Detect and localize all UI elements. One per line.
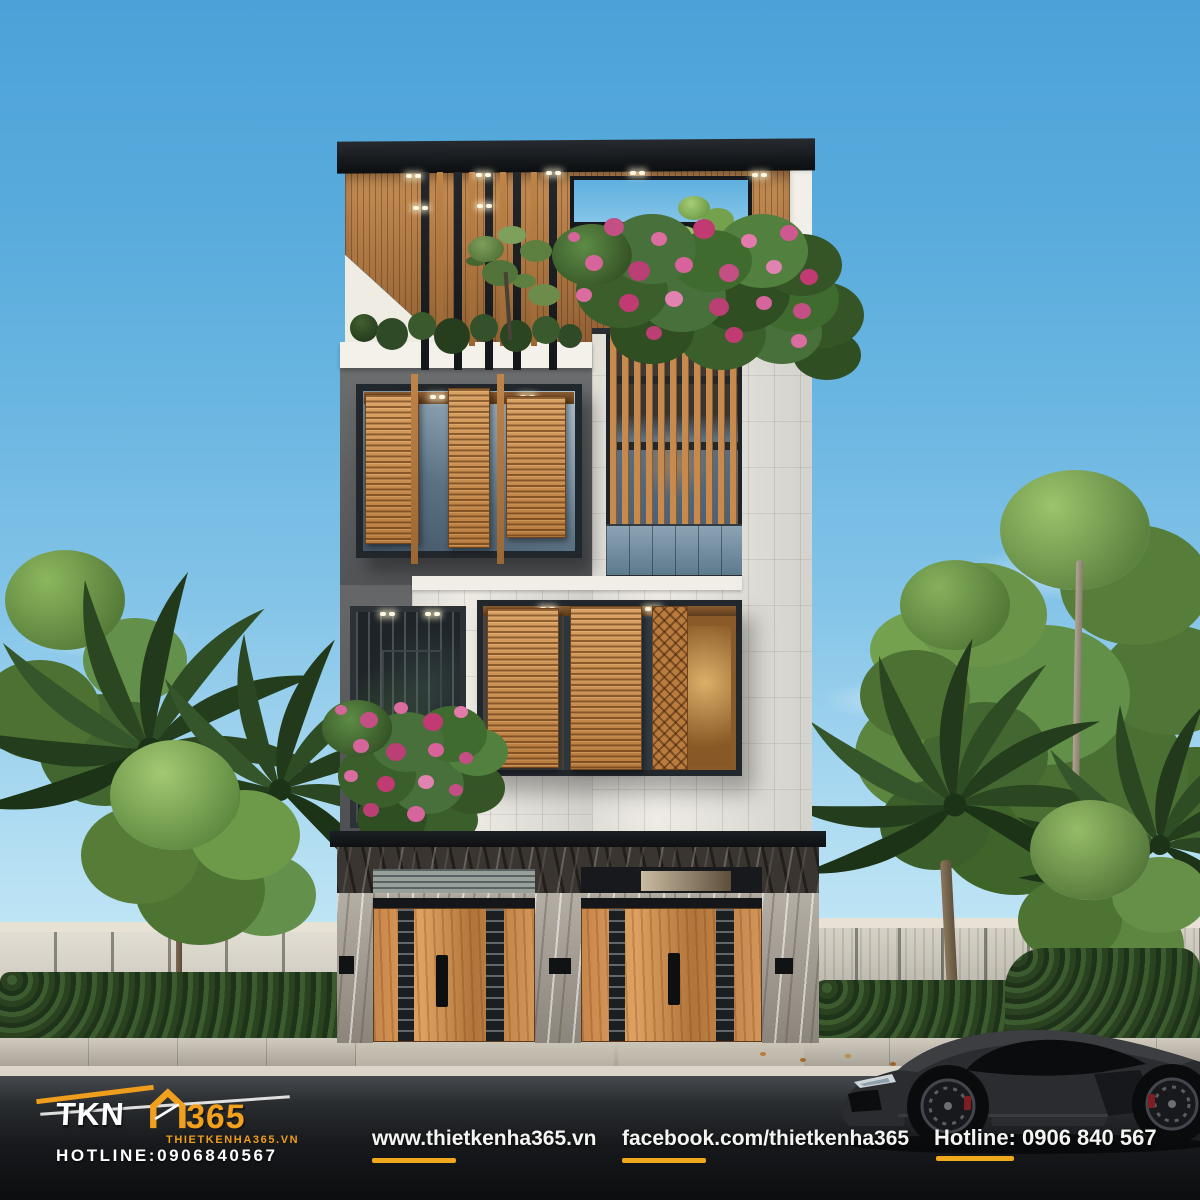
garage-shutter-strip (373, 869, 535, 895)
logo-hotline-text: HOTLINE:0906840567 (56, 1146, 278, 1166)
footer-facebook-underline (622, 1158, 706, 1163)
shutter-track-post (497, 374, 504, 564)
downlight (752, 173, 758, 177)
footer-hotline: Hotline: 0906 840 567 (934, 1125, 1157, 1151)
roof-skylight-opening (570, 176, 752, 230)
door-glass-strip (609, 909, 625, 1041)
roof-wood-slat (531, 172, 537, 346)
interior-glow (641, 871, 731, 891)
bougainvillea-leaves (552, 224, 632, 286)
downlight (633, 239, 639, 243)
footer-website: www.thietkenha365.vn (372, 1127, 596, 1151)
terrace-pine-tree (468, 236, 504, 262)
vertical-wood-slats (610, 334, 738, 524)
bougainvillea-flowers (335, 705, 347, 715)
floor-band (412, 576, 742, 590)
downlight (430, 395, 436, 399)
logo: TKN 365 THIETKENHA365.VN HOTLINE:0906840… (0, 1080, 330, 1200)
louver-shutter (487, 608, 559, 768)
roof-fin (549, 172, 557, 370)
bougainvillea-flowers (568, 232, 580, 242)
footer-website-underline (372, 1158, 456, 1163)
downlight (425, 612, 431, 616)
roof-wood-slat (500, 172, 506, 346)
louver-shutter (448, 388, 490, 548)
louver-shutter (570, 606, 642, 770)
door-glass-strip (716, 909, 734, 1041)
garage-lintel (373, 898, 535, 908)
architectural-render: TKN 365 THIETKENHA365.VN HOTLINE:0906840… (0, 0, 1200, 1200)
bougainvillea-leaves (322, 700, 392, 756)
roof-slab (337, 138, 815, 173)
canopy-slab (330, 831, 826, 847)
footer-facebook: facebook.com/thietkenha365 (622, 1127, 909, 1151)
terrace-shrubs (350, 314, 378, 342)
car-intake (848, 1090, 882, 1112)
door-glass-strip (486, 909, 504, 1041)
footer-hotline-underline (936, 1156, 1014, 1161)
logo-brand-text: TKN (55, 1096, 126, 1133)
garage-transom (581, 867, 762, 895)
wall-lamp (339, 956, 354, 974)
louver-shutter (506, 396, 566, 538)
downlight (546, 171, 552, 175)
house-icon (146, 1086, 186, 1132)
logo-site-text: THIETKENHA365.VN (166, 1134, 299, 1146)
shutter-track-post (411, 374, 418, 564)
downlight (413, 206, 419, 210)
logo-number-text: 365 (185, 1098, 247, 1137)
glass-balustrade (606, 524, 742, 580)
door-handle (668, 953, 680, 1005)
wall-lamp (775, 958, 793, 974)
door-glass-strip (398, 909, 414, 1041)
downlight (645, 607, 651, 611)
garage-door-right (581, 908, 762, 1042)
downlight (380, 612, 386, 616)
downlight (477, 204, 483, 208)
roof-tree (678, 196, 710, 220)
downlight (476, 173, 482, 177)
downlight (630, 171, 636, 175)
roof-wood-slat (437, 172, 443, 346)
wood-lattice-panel (652, 606, 688, 770)
roof-fin (421, 172, 429, 370)
garage-lintel (581, 898, 762, 908)
downlight (726, 239, 732, 243)
roof-fin (454, 172, 462, 370)
roof-fin (513, 172, 521, 370)
garage-door-left (373, 908, 535, 1042)
downlight (406, 174, 412, 178)
wall-lamp (549, 958, 571, 974)
roof-fin (485, 172, 493, 370)
door-handle (436, 955, 448, 1007)
slat-screen-window (606, 334, 742, 524)
